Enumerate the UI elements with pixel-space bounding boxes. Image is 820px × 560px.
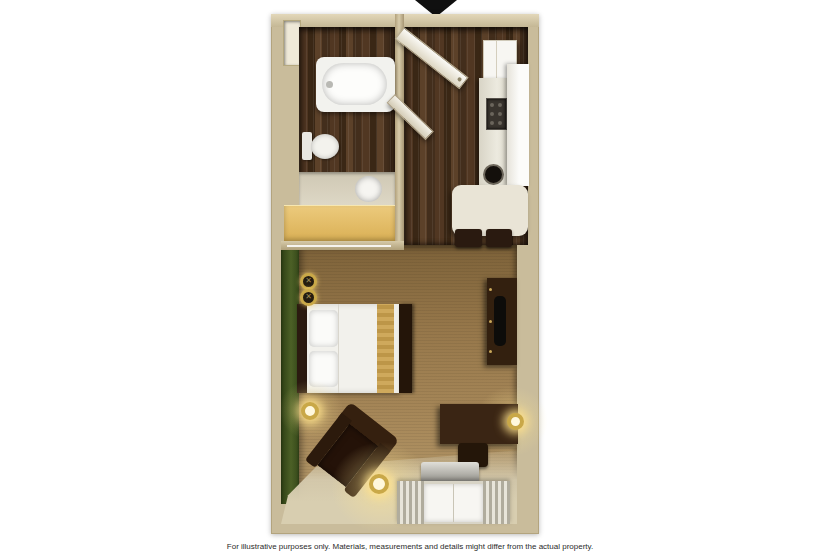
sofa [397,481,510,524]
sofa-arm [483,481,510,524]
bed-footboard [399,304,412,393]
tv-icon [494,296,506,346]
cooktop-icon [486,98,507,130]
towel-bar [287,245,391,247]
bathroom-entry-wall [395,14,404,245]
floor-plan: ✕ ✕ [271,14,539,534]
wall-sconce-icon: ✕ [300,273,317,290]
pillow [309,310,338,347]
tub-faucet-icon [326,81,333,88]
disclaimer-text: For illustrative purposes only. Material… [0,542,820,551]
top-wall [271,14,539,27]
bathtub-icon [316,57,395,112]
floor-plan-page: ✕ ✕ For illustr [0,0,820,560]
toilet-icon [311,134,339,159]
wall-sconce-icon: ✕ [300,289,317,306]
sofa-back [421,462,479,483]
desk-lamp-icon [507,413,524,430]
vanity-cabinet [284,205,395,242]
drawer-knob-icon [489,320,492,323]
dining-chair [455,229,482,247]
drawer-knob-icon [489,350,492,353]
duvet-seam [338,304,339,393]
door-knob-icon [457,76,463,82]
sofa-cushions [424,484,483,522]
floor-lamp-icon [369,474,389,494]
dining-chair [486,229,512,247]
bed-accent-band [377,304,394,393]
refrigerator [507,64,529,186]
kitchen-sink-icon [483,164,504,185]
sofa-arm [397,481,424,524]
drawer-knob-icon [489,288,492,291]
bed-headboard [297,304,307,393]
pillow [309,351,338,387]
nightstand-lamp-icon [301,402,319,420]
desk [440,404,518,444]
vanity-sink-icon [355,176,382,202]
